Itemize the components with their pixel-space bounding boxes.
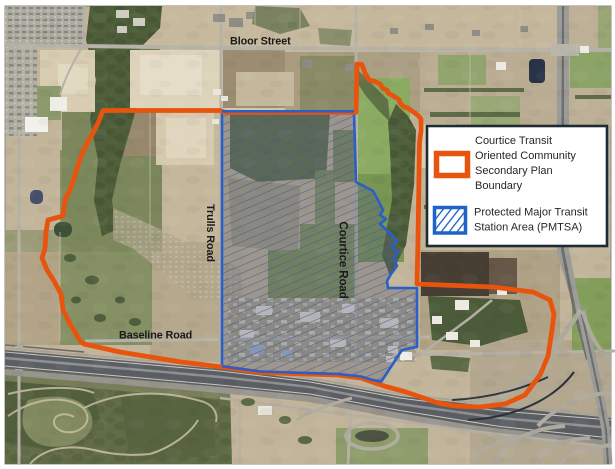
svg-text:Courtice Transit: Courtice Transit — [475, 135, 552, 147]
svg-text:Trulls Road: Trulls Road — [204, 204, 216, 262]
svg-text:Secondary Plan: Secondary Plan — [475, 165, 553, 177]
svg-text:Protected Major Transit: Protected Major Transit — [474, 207, 588, 219]
svg-text:Station Area (PMTSA): Station Area (PMTSA) — [474, 222, 582, 234]
svg-text:Baseline Road: Baseline Road — [119, 330, 192, 342]
svg-text:Boundary: Boundary — [475, 180, 523, 192]
svg-text:Courtice Road: Courtice Road — [337, 221, 349, 298]
svg-text:Oriented Community: Oriented Community — [475, 150, 576, 162]
svg-text:Bloor Street: Bloor Street — [230, 36, 291, 48]
